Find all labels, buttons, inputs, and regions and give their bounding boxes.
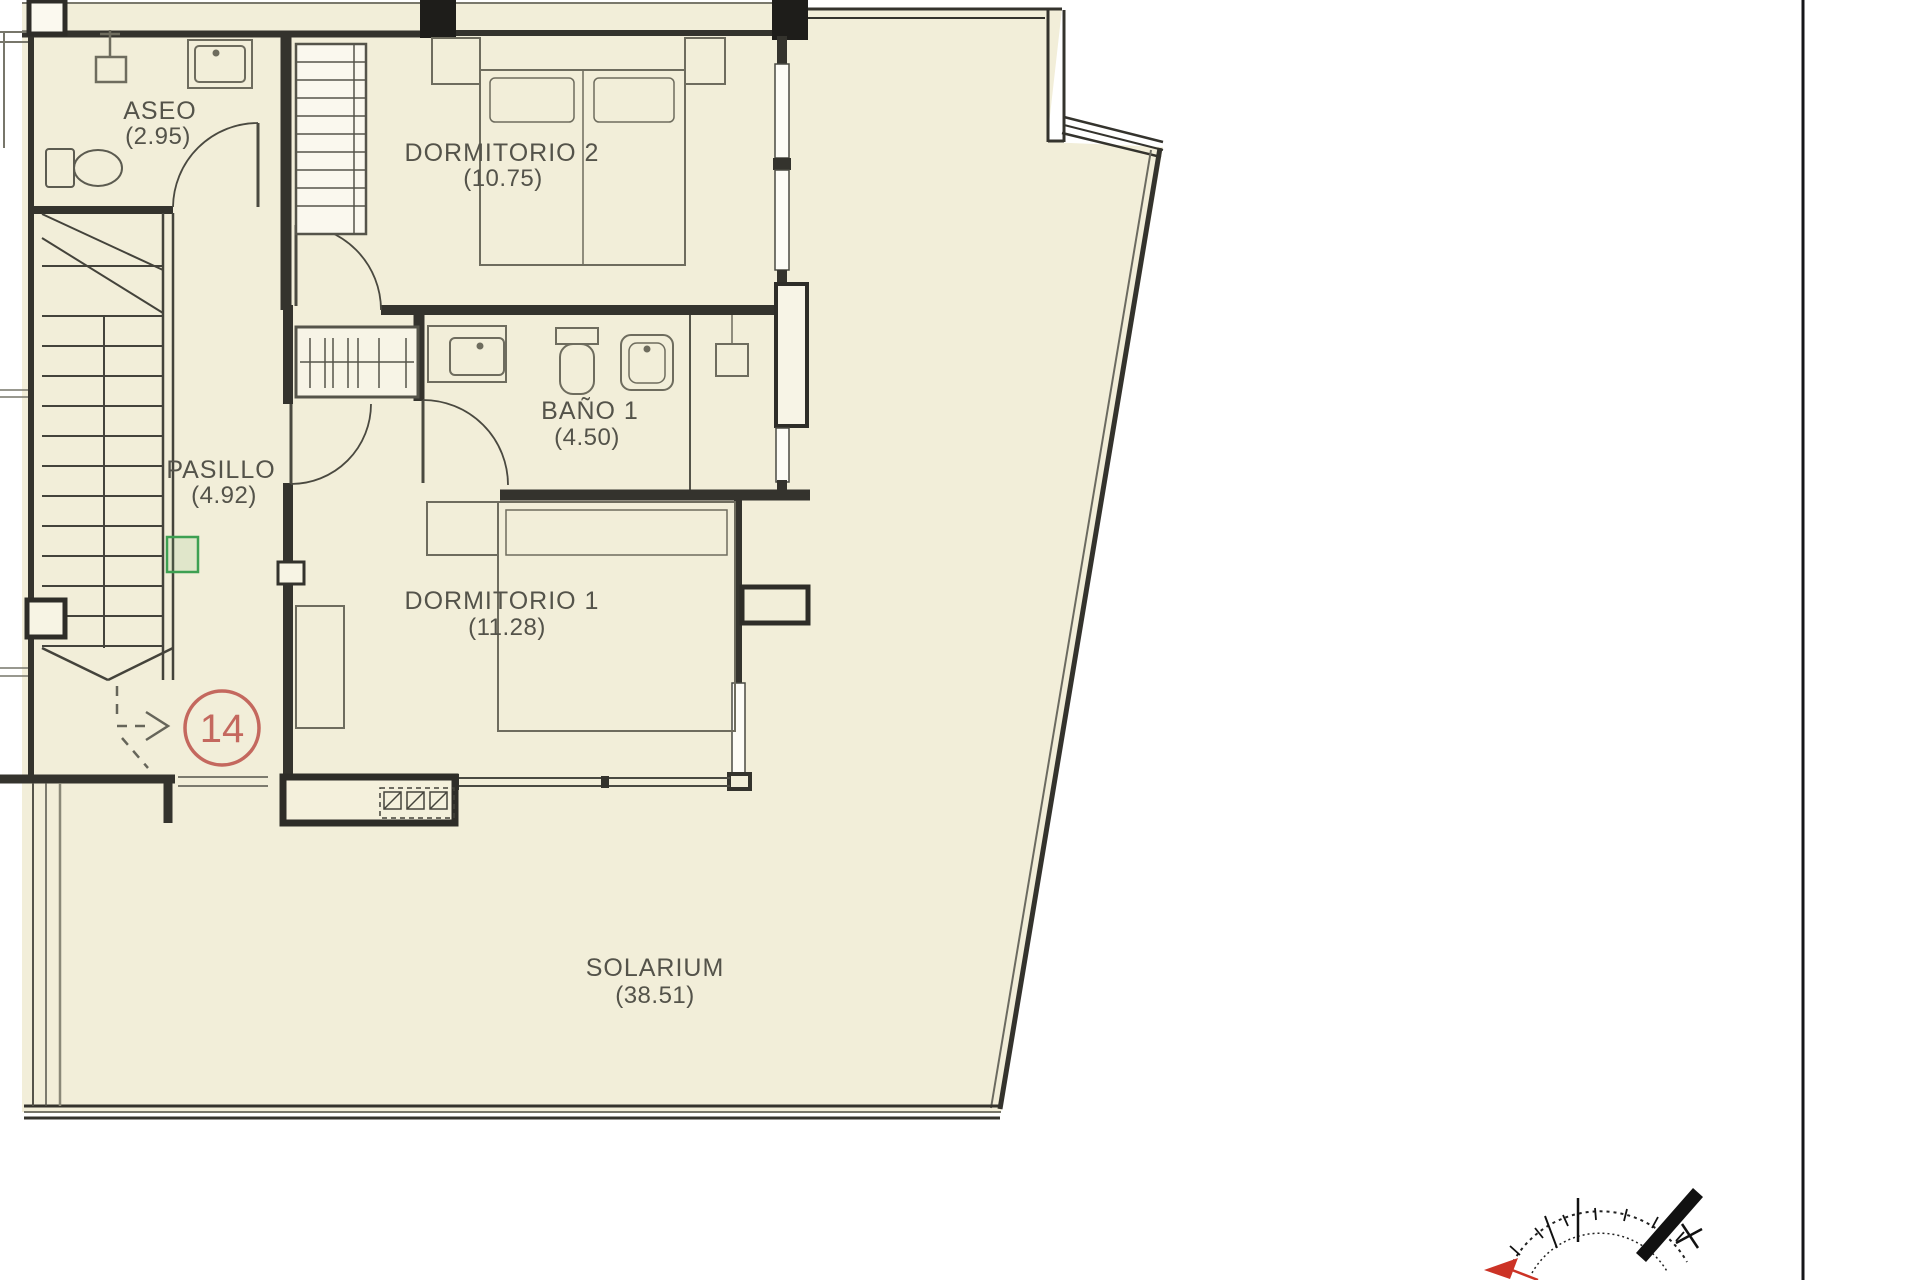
north-needle-icon: [1636, 1188, 1703, 1262]
floor-plan-sheet: ASEO (2.95) DORMITORIO 2 (10.75) BAÑO 1 …: [0, 0, 1920, 1280]
wardrobe-hangers-icon: [296, 327, 418, 397]
area-dormitorio-1: (11.28): [468, 614, 546, 641]
wall-pillar: [27, 600, 65, 637]
label-aseo: ASEO: [123, 97, 196, 125]
area-solarium: (38.51): [615, 982, 695, 1009]
label-pasillo: PASILLO: [166, 456, 275, 484]
wardrobe-shelves-icon: [296, 44, 366, 234]
wall-stub: [742, 587, 808, 623]
label-solarium: SOLARIUM: [586, 954, 725, 982]
green-highlight-box: [167, 537, 198, 572]
label-dormitorio-1: DORMITORIO 1: [405, 587, 600, 615]
wall-box: [278, 562, 304, 584]
ac-unit-box: [283, 777, 455, 823]
compass-rose-icon: [1484, 1188, 1703, 1280]
window: [776, 428, 789, 482]
corner-pillar: [29, 1, 65, 34]
wall-corner: [729, 774, 750, 789]
area-pasillo: (4.92): [191, 482, 257, 509]
wall-shaft: [776, 284, 807, 426]
floor-plan-drawing: ASEO (2.95) DORMITORIO 2 (10.75) BAÑO 1 …: [0, 0, 1920, 1280]
unit-number: 14: [200, 707, 245, 751]
compass-south-arrow: [1484, 1258, 1538, 1280]
window: [773, 36, 791, 286]
area-bano-1: (4.50): [554, 424, 620, 451]
black-pillar-east: [772, 0, 808, 40]
area-dormitorio-2: (10.75): [463, 165, 543, 192]
label-bano-1: BAÑO 1: [541, 396, 639, 425]
black-pillar-west: [420, 0, 456, 38]
label-dormitorio-2: DORMITORIO 2: [405, 139, 600, 167]
area-aseo: (2.95): [125, 123, 191, 150]
